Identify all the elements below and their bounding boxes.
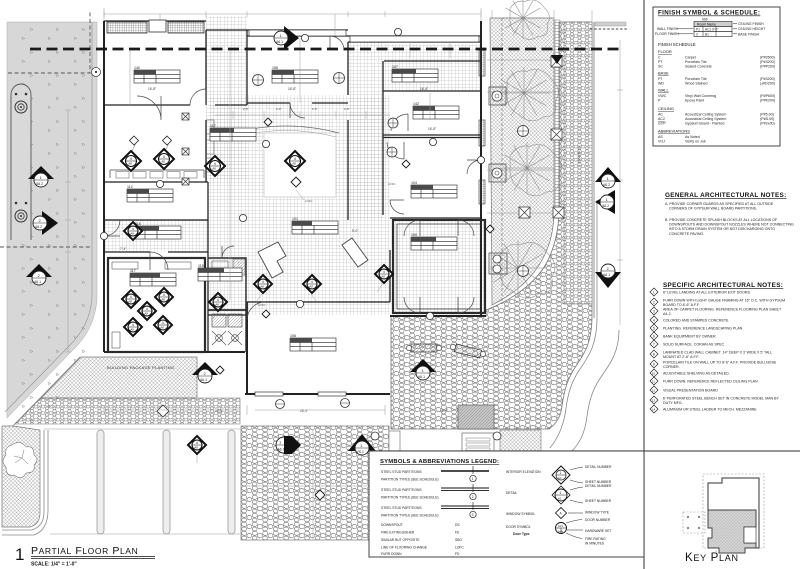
svg-text:9'-0": 9'-0"	[352, 229, 358, 233]
svg-text:4: 4	[196, 441, 198, 445]
svg-text:STEEL STUD PARTITIONS: STEEL STUD PARTITIONS	[381, 506, 422, 510]
svg-text:LOFC: LOFC	[455, 546, 464, 550]
svg-text:B1: B1	[705, 33, 709, 37]
svg-text:WALL FINISH: WALL FINISH	[657, 27, 679, 31]
svg-text:140: 140	[134, 66, 140, 70]
svg-text:A1: A1	[558, 497, 562, 501]
svg-text:FINISH SYMBOL & SCHEDULE:: FINISH SYMBOL & SCHEDULE:	[658, 10, 760, 17]
svg-text:100: 100	[411, 233, 417, 237]
svg-text:(P#K200): (P#K200)	[760, 99, 775, 103]
svg-text:Carpet: Carpet	[685, 56, 696, 60]
svg-text:KEY PLAN: KEY PLAN	[685, 552, 739, 564]
svg-text:CORNER.: CORNER.	[663, 365, 680, 369]
svg-text:FURR DOWN. REFERENCE REFLECTED: FURR DOWN. REFERENCE REFLECTED CEILING P…	[663, 380, 758, 384]
svg-text:4: 4	[163, 293, 165, 297]
svg-text:A8: A8	[309, 285, 313, 289]
svg-text:16'-0": 16'-0"	[440, 409, 448, 413]
svg-text:117: 117	[210, 124, 216, 128]
svg-text:156: 156	[272, 66, 278, 70]
svg-text:SOLID SURFACE. CORIAN AS SPEC.: SOLID SURFACE. CORIAN AS SPEC.	[663, 343, 725, 347]
svg-text:AC: AC	[658, 113, 663, 117]
svg-text:A8: A8	[144, 312, 148, 316]
svg-text:16'-8": 16'-8"	[148, 87, 156, 91]
svg-text:2'-8": 2'-8"	[243, 107, 249, 111]
svg-text:4: 4	[214, 162, 216, 166]
svg-text:6' PERFORATED STEEL BENCH SET: 6' PERFORATED STEEL BENCH SET IN CONCRET…	[663, 397, 780, 401]
svg-text:4: 4	[383, 270, 385, 274]
svg-text:FINISH SCHEDULE: FINISH SCHEDULE	[658, 42, 696, 47]
svg-text:PARTITION TYPES (SEE SCHEDULE): PARTITION TYPES (SEE SCHEDULE)	[381, 478, 439, 482]
svg-text:9: 9	[653, 362, 655, 366]
svg-text:FLOOR FINISH: FLOOR FINISH	[655, 32, 679, 36]
svg-text:2: 2	[472, 495, 474, 499]
svg-text:INTO A STORM DRAIN SYSTEM OR N: INTO A STORM DRAIN SYSTEM OR NOT DISCHAR…	[669, 227, 775, 231]
svg-text:(P#P200): (P#P200)	[760, 65, 775, 69]
svg-text:Gypsum Board - Painted: Gypsum Board - Painted	[685, 122, 724, 126]
svg-text:A4-2.: A4-2.	[663, 312, 672, 316]
svg-text:DOOR NUMBER: DOOR NUMBER	[585, 518, 611, 522]
svg-text:4: 4	[294, 157, 296, 161]
svg-text:DOWNSPOUT: DOWNSPOUT	[381, 523, 403, 527]
svg-text:VS.1: VS.1	[357, 450, 364, 454]
svg-text:(P#5.00): (P#5.00)	[760, 113, 774, 117]
svg-text:4: 4	[262, 280, 264, 284]
svg-text:142: 142	[413, 102, 419, 106]
svg-text:AREA OF CARPET FLOORING. REFER: AREA OF CARPET FLOORING. REFERENCE FLOOR…	[663, 308, 782, 312]
svg-text:WD: WD	[658, 82, 664, 86]
svg-text:PT: PT	[658, 77, 663, 81]
svg-text:SIMILAR BUT OPPOSITE: SIMILAR BUT OPPOSITE	[381, 538, 420, 542]
svg-text:BOARD TO 8'-6" A.F.F.: BOARD TO 8'-6" A.F.F.	[663, 303, 700, 307]
svg-text:A6.1: A6.1	[200, 378, 207, 382]
svg-text:1: 1	[653, 290, 655, 294]
svg-text:CORNERS OF GYPSUM WALL BOARD P: CORNERS OF GYPSUM WALL BOARD PARTITIONS.	[669, 207, 757, 211]
svg-text:8: 8	[653, 352, 655, 356]
svg-text:A8: A8	[194, 446, 198, 450]
svg-text:PORCELAIN TILE ON WALL UP TO 8: PORCELAIN TILE ON WALL UP TO 8'-6" A.F.F…	[663, 361, 777, 365]
svg-text:A8: A8	[130, 328, 134, 332]
svg-text:(P#2±00): (P#2±00)	[760, 122, 775, 126]
svg-text:VOJ: VOJ	[658, 140, 665, 144]
svg-text:Door Type: Door Type	[513, 532, 530, 536]
svg-text:A. PROVIDE CORNER GUARDS AS SP: A. PROVIDE CORNER GUARDS AS SPECIFIED AT…	[665, 202, 774, 206]
svg-text:A6.2: A6.2	[35, 225, 42, 229]
svg-text:106: 106	[290, 334, 296, 338]
svg-text:104: 104	[411, 181, 417, 185]
svg-text:STEEL STUD PARTITIONS: STEEL STUD PARTITIONS	[381, 488, 422, 492]
svg-text:SBO: SBO	[455, 538, 462, 542]
svg-text:P1: P1	[696, 28, 700, 32]
svg-text:SHEET NUMBER: SHEET NUMBER	[585, 499, 612, 503]
svg-text:2: 2	[653, 300, 655, 304]
svg-text:A1: A1	[558, 476, 562, 480]
svg-text:A8: A8	[260, 285, 264, 289]
svg-text:5: 5	[653, 326, 655, 330]
svg-text:1: 1	[560, 491, 562, 495]
svg-text:ABBREVIATIONS: ABBREVIATIONS	[658, 129, 690, 134]
svg-text:BASE FINISH: BASE FINISH	[738, 32, 760, 36]
svg-text:FURR DOWN: FURR DOWN	[381, 552, 402, 556]
svg-text:10: 10	[652, 371, 656, 375]
svg-text:PARTITION TYPES (SEE SCHEDULE): PARTITION TYPES (SEE SCHEDULE)	[381, 496, 439, 500]
svg-text:4: 4	[132, 227, 134, 231]
svg-text:A8: A8	[160, 326, 164, 330]
svg-text:VISUAL PRESENTATION BOARD: VISUAL PRESENTATION BOARD	[663, 389, 718, 393]
svg-text:24'-0": 24'-0"	[215, 409, 223, 413]
svg-text:HW: HW	[558, 529, 563, 533]
svg-text:PARTIAL FLOOR PLAN: PARTIAL FLOOR PLAN	[31, 545, 138, 557]
svg-text:1: 1	[560, 471, 562, 475]
svg-text:FLOOR: FLOOR	[658, 49, 672, 54]
svg-text:WALL: WALL	[658, 88, 670, 93]
svg-text:PT: PT	[658, 60, 663, 64]
svg-text:SPECIFIC ARCHITECTURAL NOTES:: SPECIFIC ARCHITECTURAL NOTES:	[663, 282, 783, 289]
svg-text:DETAIL: DETAIL	[506, 491, 517, 495]
svg-text:WINDOW TYPE: WINDOW TYPE	[585, 511, 610, 515]
svg-text:LINE OF FLOORING CHANGE: LINE OF FLOORING CHANGE	[381, 546, 428, 550]
svg-text:WINDOW SYMBOL: WINDOW SYMBOL	[506, 512, 535, 516]
svg-text:Acoustical Ceiling System: Acoustical Ceiling System	[685, 117, 726, 121]
svg-text:3: 3	[653, 309, 655, 313]
svg-text:C: C	[658, 56, 661, 60]
svg-text:Room Name: Room Name	[697, 23, 716, 27]
svg-text:4: 4	[130, 295, 132, 299]
svg-text:CEILING HEIGHT: CEILING HEIGHT	[738, 27, 765, 31]
svg-text:2'-8": 2'-8"	[344, 107, 350, 111]
svg-text:SC: SC	[658, 65, 663, 69]
svg-text:SCALE: 1/4" = 1'-0": SCALE: 1/4" = 1'-0"	[31, 562, 77, 568]
svg-text:DOWNSPOUTS AND DOWNSPOUT NOZZL: DOWNSPOUTS AND DOWNSPOUT NOZZLES WHERE N…	[669, 223, 794, 227]
svg-text:Wood Stained: Wood Stained	[685, 82, 708, 86]
svg-text:(P#D.00): (P#D.00)	[760, 117, 774, 121]
svg-text:6'-8": 6'-8"	[276, 107, 282, 111]
svg-text:A6.1: A6.1	[418, 375, 425, 379]
svg-text:4: 4	[146, 307, 148, 311]
svg-text:BUILDING PACKAGE: BUILDING PACKAGE	[107, 365, 151, 370]
svg-text:14: 14	[652, 407, 656, 411]
svg-text:16'-8": 16'-8"	[288, 87, 296, 91]
svg-text:A6.1: A6.1	[278, 448, 285, 452]
svg-text:BASE: BASE	[658, 71, 669, 76]
svg-text:LAMINATED CLAD WALL CABINET. 1: LAMINATED CLAD WALL CABINET. 14" DEEP X …	[663, 351, 772, 355]
svg-text:A6.2: A6.2	[603, 183, 610, 187]
svg-text:(±#D200): (±#D200)	[760, 82, 775, 86]
svg-text:6'-8": 6'-8"	[312, 107, 318, 111]
svg-text:A8: A8	[161, 298, 165, 302]
svg-text:4: 4	[311, 280, 313, 284]
svg-text:Verify on Job: Verify on Job	[685, 140, 706, 144]
svg-text:Porcelain Tile: Porcelain Tile	[685, 60, 707, 64]
svg-text:CEILING: CEILING	[658, 106, 674, 111]
svg-text:PLANTING: PLANTING	[152, 365, 174, 370]
svg-text:Vinyl Wall Covering: Vinyl Wall Covering	[685, 94, 716, 98]
svg-text:Porcelain Tile: Porcelain Tile	[685, 77, 707, 81]
svg-text:Acoustical Ceiling System: Acoustical Ceiling System	[685, 113, 726, 117]
svg-text:Epoxy Paint: Epoxy Paint	[685, 99, 704, 103]
svg-text:BANK EQUIPMENT BY OWNER.: BANK EQUIPMENT BY OWNER.	[663, 335, 717, 339]
svg-text:A6.1: A6.1	[34, 280, 41, 284]
svg-text:4: 4	[130, 157, 132, 161]
svg-text:A8: A8	[381, 275, 385, 279]
svg-text:As Noted: As Noted	[685, 135, 700, 139]
svg-text:DS: DS	[455, 523, 460, 527]
svg-text:1: 1	[15, 545, 24, 564]
svg-text:A8: A8	[292, 162, 296, 166]
svg-text:A8: A8	[215, 303, 219, 307]
svg-text:GENERAL ARCHITECTURAL NOTES:: GENERAL ARCHITECTURAL NOTES:	[665, 192, 787, 199]
svg-text:11: 11	[652, 379, 655, 383]
svg-text:A6.2: A6.2	[36, 182, 43, 186]
svg-text:IN MINUTES: IN MINUTES	[585, 542, 605, 546]
svg-text:6" LEVEL LANDING AT ALL EXTERI: 6" LEVEL LANDING AT ALL EXTERIOR EXIT DO…	[663, 291, 751, 295]
svg-text:LOFC: LOFC	[258, 303, 265, 307]
svg-text:28'-4": 28'-4"	[300, 409, 308, 413]
svg-text:16'-8": 16'-8"	[428, 127, 436, 131]
svg-text:PARTITION TYPES (SEE SCHEDULE): PARTITION TYPES (SEE SCHEDULE)	[381, 514, 439, 518]
svg-text:PLANTING. REFERENCE LANDSCAPIN: PLANTING. REFERENCE LANDSCAPING PLAN	[663, 327, 743, 331]
svg-text:FURR DOWN WITH LIGHT GAUGE FRA: FURR DOWN WITH LIGHT GAUGE FRAMING AT 16…	[663, 299, 785, 303]
svg-text:A6.2: A6.2	[602, 204, 609, 208]
svg-text:SYMBOLS & ABBREVIATIONS LEGEND: SYMBOLS & ABBREVIATIONS LEGEND:	[380, 459, 499, 465]
svg-text:LOFC: LOFC	[388, 182, 395, 186]
svg-text:115: 115	[198, 264, 204, 268]
svg-text:COLORED AND STAMPED CONCRETE: COLORED AND STAMPED CONCRETE	[663, 319, 729, 323]
svg-text:DUTY MFG.: DUTY MFG.	[663, 401, 683, 405]
svg-text:Sealed Concrete: Sealed Concrete	[685, 65, 712, 69]
svg-text:B. PROVIDE CONCRETE SPLASH BLO: B. PROVIDE CONCRETE SPLASH BLOCKS AT ALL…	[665, 218, 778, 222]
svg-text:A8: A8	[128, 300, 132, 304]
svg-text:7: 7	[653, 342, 655, 346]
svg-text:13: 13	[652, 398, 656, 402]
svg-text:(P#P600): (P#P600)	[760, 94, 775, 98]
svg-text:4: 4	[132, 323, 134, 327]
svg-text:ALUMINUM OR STEEL LADDER TO ME: ALUMINUM OR STEEL LADDER TO MECH. MEZZAN…	[663, 408, 757, 412]
svg-text:INTERIOR ELEVATION: INTERIOR ELEVATION	[506, 470, 541, 474]
svg-text:HARDWARE SET: HARDWARE SET	[585, 529, 611, 533]
svg-text:FD: FD	[455, 552, 460, 556]
svg-text:GYP: GYP	[658, 122, 666, 126]
svg-text:7'-4": 7'-4"	[120, 247, 126, 251]
svg-text:A8: A8	[212, 167, 216, 171]
svg-text:16'-8": 16'-8"	[420, 87, 428, 91]
svg-text:DETAIL NUMBER: DETAIL NUMBER	[585, 465, 612, 469]
svg-text:1: 1	[472, 477, 474, 481]
svg-text:112: 112	[127, 185, 133, 189]
svg-text:4: 4	[163, 155, 165, 159]
svg-text:VWC: VWC	[658, 94, 667, 98]
svg-text:4: 4	[653, 318, 655, 322]
svg-text:LOFC: LOFC	[305, 199, 312, 203]
svg-text:DOOR SYMBOL: DOOR SYMBOL	[506, 525, 531, 529]
svg-text:P/L SETBACK: P/L SETBACK	[577, 146, 581, 164]
svg-text:MOUNT AT 2'-6" A.F.F.: MOUNT AT 2'-6" A.F.F.	[663, 355, 699, 359]
svg-text:DETAIL NUMBER: DETAIL NUMBER	[585, 484, 612, 488]
svg-text:4: 4	[162, 321, 164, 325]
svg-text:101: 101	[292, 217, 298, 221]
svg-text:STEEL STUD PARTITIONS: STEEL STUD PARTITIONS	[381, 470, 422, 474]
svg-text:107: 107	[392, 65, 398, 69]
svg-text:A6.1: A6.1	[276, 40, 283, 44]
svg-text:AC1 9'-0": AC1 9'-0"	[705, 28, 718, 32]
svg-text:000: 000	[702, 18, 708, 22]
svg-text:CONCRETE PAVING.: CONCRETE PAVING.	[669, 232, 704, 236]
svg-text:CEILING FINISH: CEILING FINISH	[738, 22, 764, 26]
svg-text:3: 3	[472, 513, 474, 517]
svg-text:AC2: AC2	[658, 117, 665, 121]
svg-text:AS: AS	[658, 135, 663, 139]
svg-text:101: 101	[558, 524, 563, 528]
svg-text:117: 117	[130, 269, 136, 273]
svg-text:ADJUSTABLE SHELVING AS DETAILE: ADJUSTABLE SHELVING AS DETAILED.	[663, 372, 730, 376]
svg-text:6: 6	[653, 334, 655, 338]
svg-text:FIRE RATING: FIRE RATING	[585, 537, 606, 541]
svg-text:(P#3200): (P#3200)	[760, 60, 775, 64]
svg-text:A8: A8	[128, 162, 132, 166]
svg-text:12: 12	[652, 388, 656, 392]
svg-text:(P#3200): (P#3200)	[760, 77, 775, 81]
svg-text:A8: A8	[161, 160, 165, 164]
svg-text:A8: A8	[130, 232, 134, 236]
svg-text:(P#2600): (P#2600)	[760, 56, 775, 60]
svg-text:FIRE EXTINGUISHER: FIRE EXTINGUISHER	[381, 531, 415, 535]
svg-text:A6.1: A6.1	[603, 273, 610, 277]
svg-text:4: 4	[217, 298, 219, 302]
